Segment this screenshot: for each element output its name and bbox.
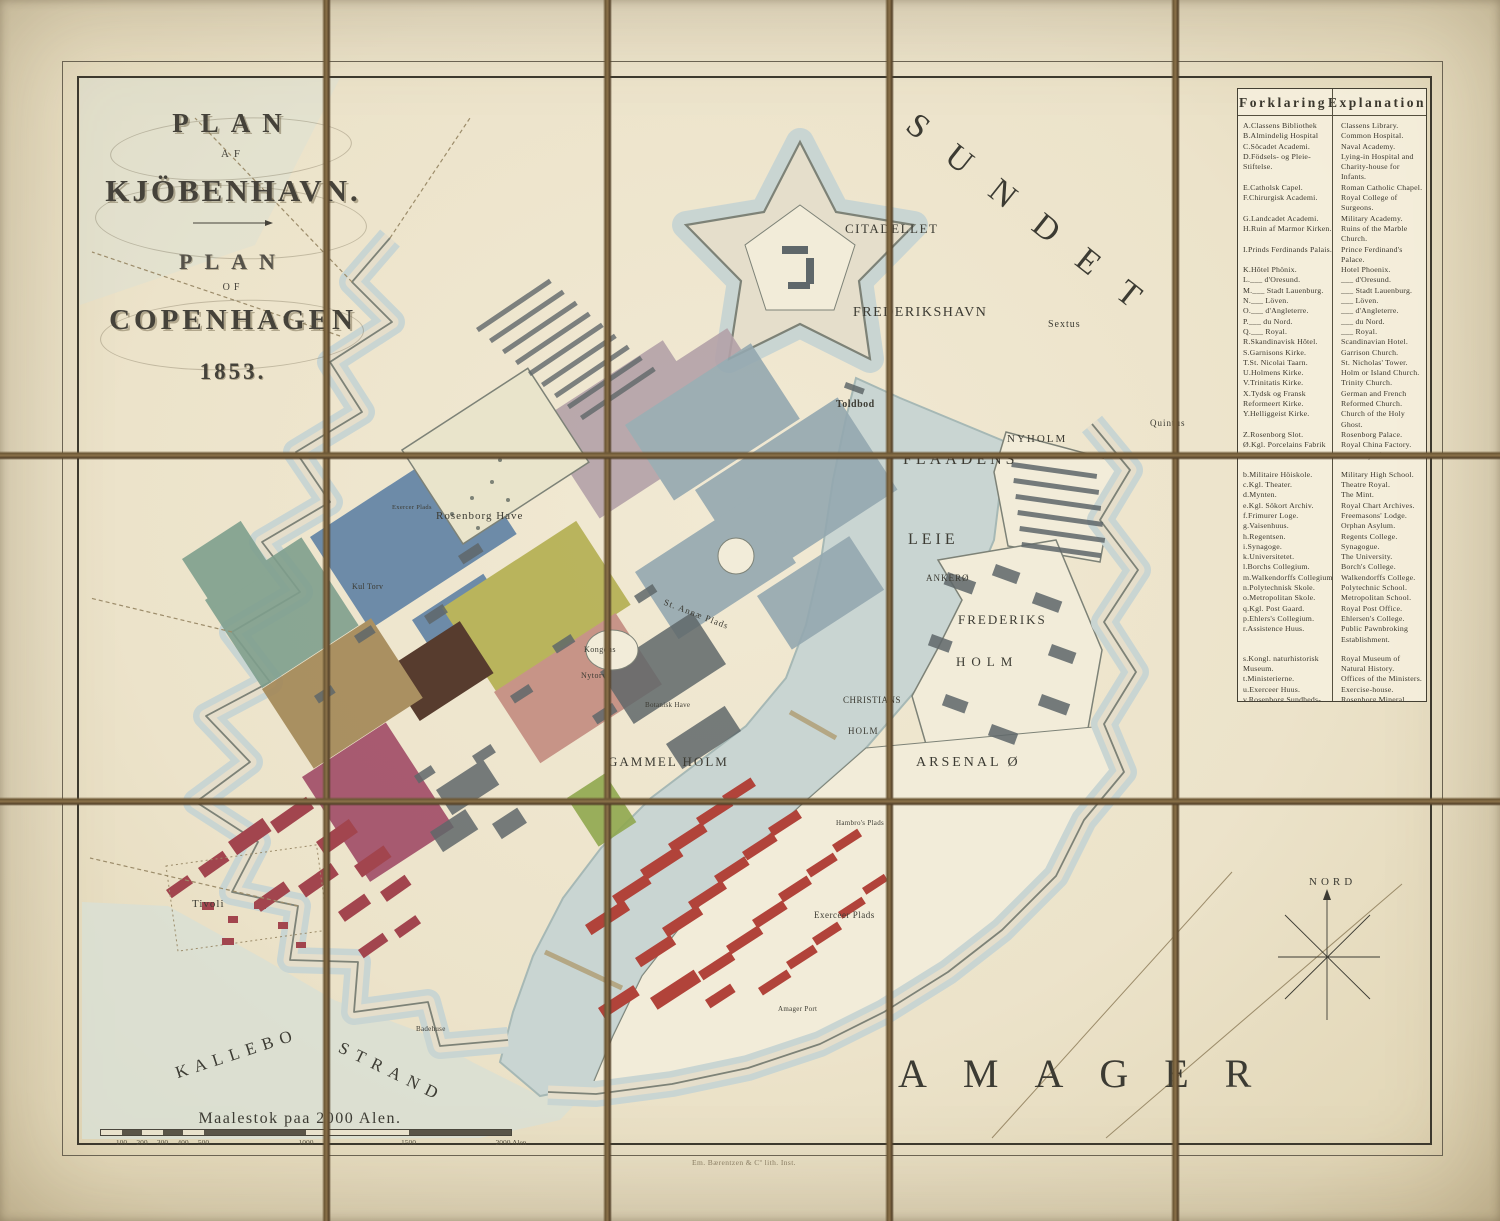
legend-entry-english: Roman Catholic Chapel. xyxy=(1341,183,1423,193)
legend-entry-english: Metropolitan School. xyxy=(1341,593,1423,603)
legend-row: o.Metropolitan Skole.Metropolitan School… xyxy=(1243,593,1423,603)
legend-entry-english: The University. xyxy=(1341,552,1423,562)
legend-entry-danish: Y.Helliggeist Kirke. xyxy=(1243,409,1335,430)
legend-header-english: Explanation xyxy=(1328,89,1426,115)
title-plan-en: PLAN xyxy=(88,249,378,275)
legend-entry-english: Garrison Church. xyxy=(1341,348,1423,358)
legend-entry-danish: S.Garnisons Kirke. xyxy=(1243,348,1335,358)
legend-entry-danish: g.Vaisenhuus. xyxy=(1243,521,1335,531)
legend-row: s.Kongl. naturhistorisk Museum.Royal Mus… xyxy=(1243,654,1423,675)
legend-entry-danish: C.Söcadet Academi. xyxy=(1243,142,1335,152)
legend-entry-danish: H.Ruin af Marmor Kirken. xyxy=(1243,224,1335,245)
legend-row: B.Almindelig HospitalCommon Hospital. xyxy=(1243,131,1423,141)
map-sheet: PLAN AF KJÖBENHAVN. PLAN OF COPENHAGEN 1… xyxy=(0,0,1500,1221)
legend-entry-english: Royal Chart Archives. xyxy=(1341,501,1423,511)
legend-entry-english: Exercise-house. xyxy=(1341,685,1423,695)
label-frederiks: FREDERIKS xyxy=(958,612,1047,628)
legend-entry-english: Hotel Phoenix. xyxy=(1341,265,1423,275)
label-amager-port: Amager Port xyxy=(778,1005,817,1013)
legend-entry-english: Scandinavian Hotel. xyxy=(1341,337,1423,347)
title-of: OF xyxy=(88,282,378,293)
legend-entry-danish: V.Trinitatis Kirke. xyxy=(1243,378,1335,388)
legend-row: S.Garnisons Kirke.Garrison Church. xyxy=(1243,348,1423,358)
fold-line-vertical-1 xyxy=(322,0,331,1221)
label-exerceer-plads: Exerceer Plads xyxy=(814,910,875,920)
legend-entry-english: ___ d'Oresund. xyxy=(1341,275,1423,285)
citadel-star-fort xyxy=(686,142,914,359)
scale-segment xyxy=(101,1130,122,1135)
legend-entry-english: ___ Royal. xyxy=(1341,327,1423,337)
legend-row: Z.Rosenborg Slot.Rosenborg Palace. xyxy=(1243,430,1423,440)
legend-entry-danish: D.Födsels- og Pleie- Stiftelse. xyxy=(1243,152,1335,183)
legend-entry-english: Rosenborg Palace. xyxy=(1341,430,1423,440)
legend-entry-danish: l.Borchs Collegium. xyxy=(1243,562,1335,572)
legend-row: f.Frimurer Loge.Freemasons' Lodge. xyxy=(1243,511,1423,521)
scale-tick-label: 300 xyxy=(157,1138,168,1147)
label-amager: AMAGER xyxy=(898,1050,1287,1097)
legend-row: D.Födsels- og Pleie- Stiftelse.Lying-in … xyxy=(1243,152,1423,183)
legend-row: e.Kgl. Sökort Archiv.Royal Chart Archive… xyxy=(1243,501,1423,511)
legend-row: I.Prinds Ferdinands Palais.Prince Ferdin… xyxy=(1243,245,1423,266)
legend-row: C.Söcadet Academi.Naval Academy. xyxy=(1243,142,1423,152)
scale-segment xyxy=(142,1130,163,1135)
compass-rose xyxy=(1278,889,1380,1020)
scale-segment xyxy=(204,1130,307,1135)
legend-entry-danish: e.Kgl. Sökort Archiv. xyxy=(1243,501,1335,511)
legend-entry-danish: M.___ Stadt Lauenburg. xyxy=(1243,286,1335,296)
legend-entry-danish: f.Frimurer Loge. xyxy=(1243,511,1335,521)
scale-tick-label: 400 xyxy=(177,1138,188,1147)
scale-segment xyxy=(183,1130,204,1135)
label-arsenal-o: ARSENAL Ø xyxy=(916,755,1021,771)
legend-row: N.___ Löven.___ Löven. xyxy=(1243,296,1423,306)
legend-entry-danish: Q.___ Royal. xyxy=(1243,327,1335,337)
legend-row: k.Universitetet.The University. xyxy=(1243,552,1423,562)
label-quintus: Quintus xyxy=(1150,418,1186,428)
title-plan-da: PLAN xyxy=(88,108,378,139)
legend-row: n.Polytechnisk Skole.Polytechnic School. xyxy=(1243,583,1423,593)
legend-entry-danish: o.Metropolitan Skole. xyxy=(1243,593,1335,603)
legend-entry-english: Walkendorffs College. xyxy=(1341,573,1423,583)
label-nord: NORD xyxy=(1309,876,1356,888)
label-badehuse: Badehuse xyxy=(416,1025,446,1033)
legend-entry-english: Public Pawnbroking Establishment. xyxy=(1341,624,1423,645)
legend-row: P.___ du Nord.___ du Nord. xyxy=(1243,317,1423,327)
legend-row: O.___ d'Angleterre.___ d'Angleterre. xyxy=(1243,306,1423,316)
scale-tick-label: 2000 Alen xyxy=(495,1138,526,1147)
label-hambros-plads: Hambro's Plads xyxy=(836,819,884,827)
legend-row: R.Skandinavisk Hôtel.Scandinavian Hotel. xyxy=(1243,337,1423,347)
legend-entry-english: Classens Library. xyxy=(1341,121,1423,131)
title-copenhagen: COPENHAGEN xyxy=(88,304,378,337)
legend-row: M.___ Stadt Lauenburg.___ Stadt Lauenbur… xyxy=(1243,286,1423,296)
legend-entry-danish: s.Kongl. naturhistorisk Museum. xyxy=(1243,654,1335,675)
label-nyholm: NYHOLM xyxy=(1007,433,1067,445)
scale-bar: 100200300400500100015002000 Alen xyxy=(100,1129,512,1136)
label-tivoli: Tivoli xyxy=(192,898,225,910)
legend-entry-english: Royal College of Surgeons. xyxy=(1341,193,1423,214)
legend-row: F.Chirurgisk Academi.Royal College of Su… xyxy=(1243,193,1423,214)
legend-row: b.Militaire Höiskole.Military High Schoo… xyxy=(1243,470,1423,480)
legend-entry-english: Freemasons' Lodge. xyxy=(1341,511,1423,521)
scale-tick-label: 200 xyxy=(136,1138,147,1147)
publisher-imprint: Em. Bærentzen & Cº lith. Inst. xyxy=(644,1158,844,1167)
legend-entry-english: Ruins of the Marble Church. xyxy=(1341,224,1423,245)
legend-row: h.Regentsen.Regents College. xyxy=(1243,532,1423,542)
legend-entry-danish: Ø.Kgl. Porcelains Fabrik xyxy=(1243,440,1335,450)
plaza-amalienborg xyxy=(718,538,754,574)
title-kjobenhavn: KJÖBENHAVN. xyxy=(88,173,378,209)
legend-entry-danish: U.Holmens Kirke. xyxy=(1243,368,1335,378)
legend-entry-danish: d.Mynten. xyxy=(1243,490,1335,500)
legend-entry-english: Military Academy. xyxy=(1341,214,1423,224)
title-year: 1853. xyxy=(88,359,378,385)
legend-row: X.Tydsk og Fransk Reformeert Kirke.Germa… xyxy=(1243,389,1423,410)
legend-entry-english: Trinity Church. xyxy=(1341,378,1423,388)
legend-entry-danish: G.Landcadet Academi. xyxy=(1243,214,1335,224)
legend-entry-danish: r.Assistence Huus. xyxy=(1243,624,1335,645)
fold-line-vertical-4 xyxy=(1171,0,1180,1221)
legend-entry-danish: I.Prinds Ferdinands Palais. xyxy=(1243,245,1335,266)
legend-row: H.Ruin af Marmor Kirken.Ruins of the Mar… xyxy=(1243,224,1423,245)
legend-row: i.Synagoge.Synagogue. xyxy=(1243,542,1423,552)
legend-entry-english: Common Hospital. xyxy=(1341,131,1423,141)
legend-entry-danish: P.___ du Nord. xyxy=(1243,317,1335,327)
legend-entry-english: ___ Stadt Lauenburg. xyxy=(1341,286,1423,296)
legend-row: A.Classens BibliothekClassens Library. xyxy=(1243,121,1423,131)
legend-row: K.Hôtel Phönix.Hotel Phoenix. xyxy=(1243,265,1423,275)
title-af: AF xyxy=(88,148,378,160)
legend-row: u.Exerceer Huus.Exercise-house. xyxy=(1243,685,1423,695)
legend-entry-danish: A.Classens Bibliothek xyxy=(1243,121,1335,131)
label-holm-christiansholm: HOLM xyxy=(848,726,879,736)
legend-entry-danish: b.Militaire Höiskole. xyxy=(1243,470,1335,480)
label-gammel-holm: GAMMEL HOLM xyxy=(608,754,729,770)
label-exercer-plads-rosenborg: Exercer Plads xyxy=(392,504,432,511)
scale-segment xyxy=(409,1130,512,1135)
legend-entry-danish: m.Walkendorffs Collegium xyxy=(1243,573,1335,583)
scale-segment xyxy=(122,1130,143,1135)
legend-row: p.Ehlers's Collegium.Ehlersen's College. xyxy=(1243,614,1423,624)
legend-row: U.Holmens Kirke.Holm or Island Church. xyxy=(1243,368,1423,378)
legend-entry-danish: v.Rosenborg Sundheds- brönd Anstalt. xyxy=(1243,695,1335,702)
legend-entry-danish: F.Chirurgisk Academi. xyxy=(1243,193,1335,214)
label-toldbod: Toldbod xyxy=(836,399,875,410)
label-frederikshavn: FREDERIKSHAVN xyxy=(853,305,987,321)
legend-entry-english: Lying-in Hospital and Charity-house for … xyxy=(1341,152,1423,183)
legend-entry-danish: K.Hôtel Phönix. xyxy=(1243,265,1335,275)
legend-entry-english: Ehlersen's College. xyxy=(1341,614,1423,624)
legend-header: Forklaring Explanation xyxy=(1238,89,1426,116)
scale-segment xyxy=(163,1130,184,1135)
fold-line-vertical-2 xyxy=(603,0,612,1221)
legend-entry-english: St. Nicholas' Tower. xyxy=(1341,358,1423,368)
legend-entry-english: Naval Academy. xyxy=(1341,142,1423,152)
label-rosenborg-have: Rosenborg Have xyxy=(436,510,523,522)
label-ankero: ANKERØ xyxy=(926,573,970,583)
legend-entry-english: Holm or Island Church. xyxy=(1341,368,1423,378)
legend-entry-danish: E.Catholsk Capel. xyxy=(1243,183,1335,193)
legend-entry-danish: X.Tydsk og Fransk Reformeert Kirke. xyxy=(1243,389,1335,410)
scale-tick-label: 500 xyxy=(198,1138,209,1147)
legend-row: t.Ministerierne.Offices of the Ministers… xyxy=(1243,674,1423,684)
legend-row: d.Mynten.The Mint. xyxy=(1243,490,1423,500)
legend-entry-english: Rosenborg Mineral Water Establishment. xyxy=(1341,695,1423,702)
legend-entry-english: Military High School. xyxy=(1341,470,1423,480)
legend-entry-danish: u.Exerceer Huus. xyxy=(1243,685,1335,695)
legend-entry-danish: O.___ d'Angleterre. xyxy=(1243,306,1335,316)
legend-entry-english: Royal China Factory. xyxy=(1341,440,1423,450)
legend-entry-english: Offices of the Ministers. xyxy=(1341,674,1423,684)
legend-rows: A.Classens BibliothekClassens Library.B.… xyxy=(1238,116,1426,702)
legend-entry-english: Polytechnic School. xyxy=(1341,583,1423,593)
legend-row: Q.___ Royal.___ Royal. xyxy=(1243,327,1423,337)
legend-entry-danish: i.Synagoge. xyxy=(1243,542,1335,552)
legend-entry-danish: p.Ehlers's Collegium. xyxy=(1243,614,1335,624)
legend-entry-english: ___ d'Angleterre. xyxy=(1341,306,1423,316)
legend-entry-english: Regents College. xyxy=(1341,532,1423,542)
legend-entry-danish: n.Polytechnisk Skole. xyxy=(1243,583,1335,593)
legend-row: r.Assistence Huus.Public Pawnbroking Est… xyxy=(1243,624,1423,645)
legend-entry-danish: q.Kgl. Post Gaard. xyxy=(1243,604,1335,614)
legend-row: g.Vaisenhuus.Orphan Asylum. xyxy=(1243,521,1423,531)
title-divider-icon xyxy=(193,219,273,227)
label-kul-torv: Kul Torv xyxy=(352,582,383,591)
legend-entry-danish: h.Regentsen. xyxy=(1243,532,1335,542)
legend-entry-danish: c.Kgl. Theater. xyxy=(1243,480,1335,490)
legend-row: L.___ d'Oresund.___ d'Oresund. xyxy=(1243,275,1423,285)
fold-line-horizontal-2 xyxy=(0,797,1500,806)
legend-entry-danish: Z.Rosenborg Slot. xyxy=(1243,430,1335,440)
legend-entry-danish: N.___ Löven. xyxy=(1243,296,1335,306)
legend-entry-english: Orphan Asylum. xyxy=(1341,521,1423,531)
legend-entry-danish: R.Skandinavisk Hôtel. xyxy=(1243,337,1335,347)
legend-entry-danish: L.___ d'Oresund. xyxy=(1243,275,1335,285)
legend-row: Y.Helliggeist Kirke.Church of the Holy G… xyxy=(1243,409,1423,430)
legend-row: E.Catholsk Capel.Roman Catholic Chapel. xyxy=(1243,183,1423,193)
legend-entry-english: Theatre Royal. xyxy=(1341,480,1423,490)
legend-entry-danish: k.Universitetet. xyxy=(1243,552,1335,562)
legend-row: v.Rosenborg Sundheds- brönd Anstalt.Rose… xyxy=(1243,695,1423,702)
legend-row: G.Landcadet Academi.Military Academy. xyxy=(1243,214,1423,224)
legend-entry-english: Synagogue. xyxy=(1341,542,1423,552)
amager-field-lines xyxy=(992,872,1402,1138)
legend-row: T.St. Nicolai Taarn.St. Nicholas' Tower. xyxy=(1243,358,1423,368)
legend-row: V.Trinitatis Kirke.Trinity Church. xyxy=(1243,378,1423,388)
legend-entry-english: Royal Museum of Natural History. xyxy=(1341,654,1423,675)
legend-entry-english: Royal Post Office. xyxy=(1341,604,1423,614)
compass-north-arrow-icon xyxy=(1323,889,1331,900)
scale-title: Maalestok paa 2000 Alen. xyxy=(150,1110,450,1128)
legend-row: m.Walkendorffs CollegiumWalkendorffs Col… xyxy=(1243,573,1423,583)
label-holm-frederiksholm: HOLM xyxy=(956,654,1018,670)
title-block: PLAN AF KJÖBENHAVN. PLAN OF COPENHAGEN 1… xyxy=(88,108,378,385)
label-leie: LEIE xyxy=(908,531,959,549)
legend-row: q.Kgl. Post Gaard.Royal Post Office. xyxy=(1243,604,1423,614)
legend-row: l.Borchs Collegium.Borch's College. xyxy=(1243,562,1423,572)
fold-line-horizontal-1 xyxy=(0,451,1500,460)
legend-entry-danish: B.Almindelig Hospital xyxy=(1243,131,1335,141)
scale-tick-label: 1500 xyxy=(401,1138,416,1147)
legend-header-danish: Forklaring xyxy=(1238,89,1328,115)
legend-entry-english: Prince Ferdinand's Palace. xyxy=(1341,245,1423,266)
legend-entry-english: The Mint. xyxy=(1341,490,1423,500)
fold-line-vertical-3 xyxy=(885,0,894,1221)
scale-tick-label: 1000 xyxy=(299,1138,314,1147)
legend-row: c.Kgl. Theater.Theatre Royal. xyxy=(1243,480,1423,490)
legend-row: Ø.Kgl. Porcelains FabrikRoyal China Fact… xyxy=(1243,440,1423,450)
legend-entry-english: Church of the Holy Ghost. xyxy=(1341,409,1423,430)
legend-entry-danish: t.Ministerierne. xyxy=(1243,674,1335,684)
legend-entry-english: Borch's College. xyxy=(1341,562,1423,572)
legend-entry-english: ___ du Nord. xyxy=(1341,317,1423,327)
legend-entry-english: German and French Reformed Church. xyxy=(1341,389,1423,410)
legend-entry-danish: T.St. Nicolai Taarn. xyxy=(1243,358,1335,368)
label-botanisk-have: Botanisk Have xyxy=(645,701,690,709)
scale-tick-label: 100 xyxy=(116,1138,127,1147)
legend-entry-english: ___ Löven. xyxy=(1341,296,1423,306)
label-sextus: Sextus xyxy=(1048,319,1081,330)
legend-box: Forklaring Explanation A.Classens Biblio… xyxy=(1237,88,1427,702)
